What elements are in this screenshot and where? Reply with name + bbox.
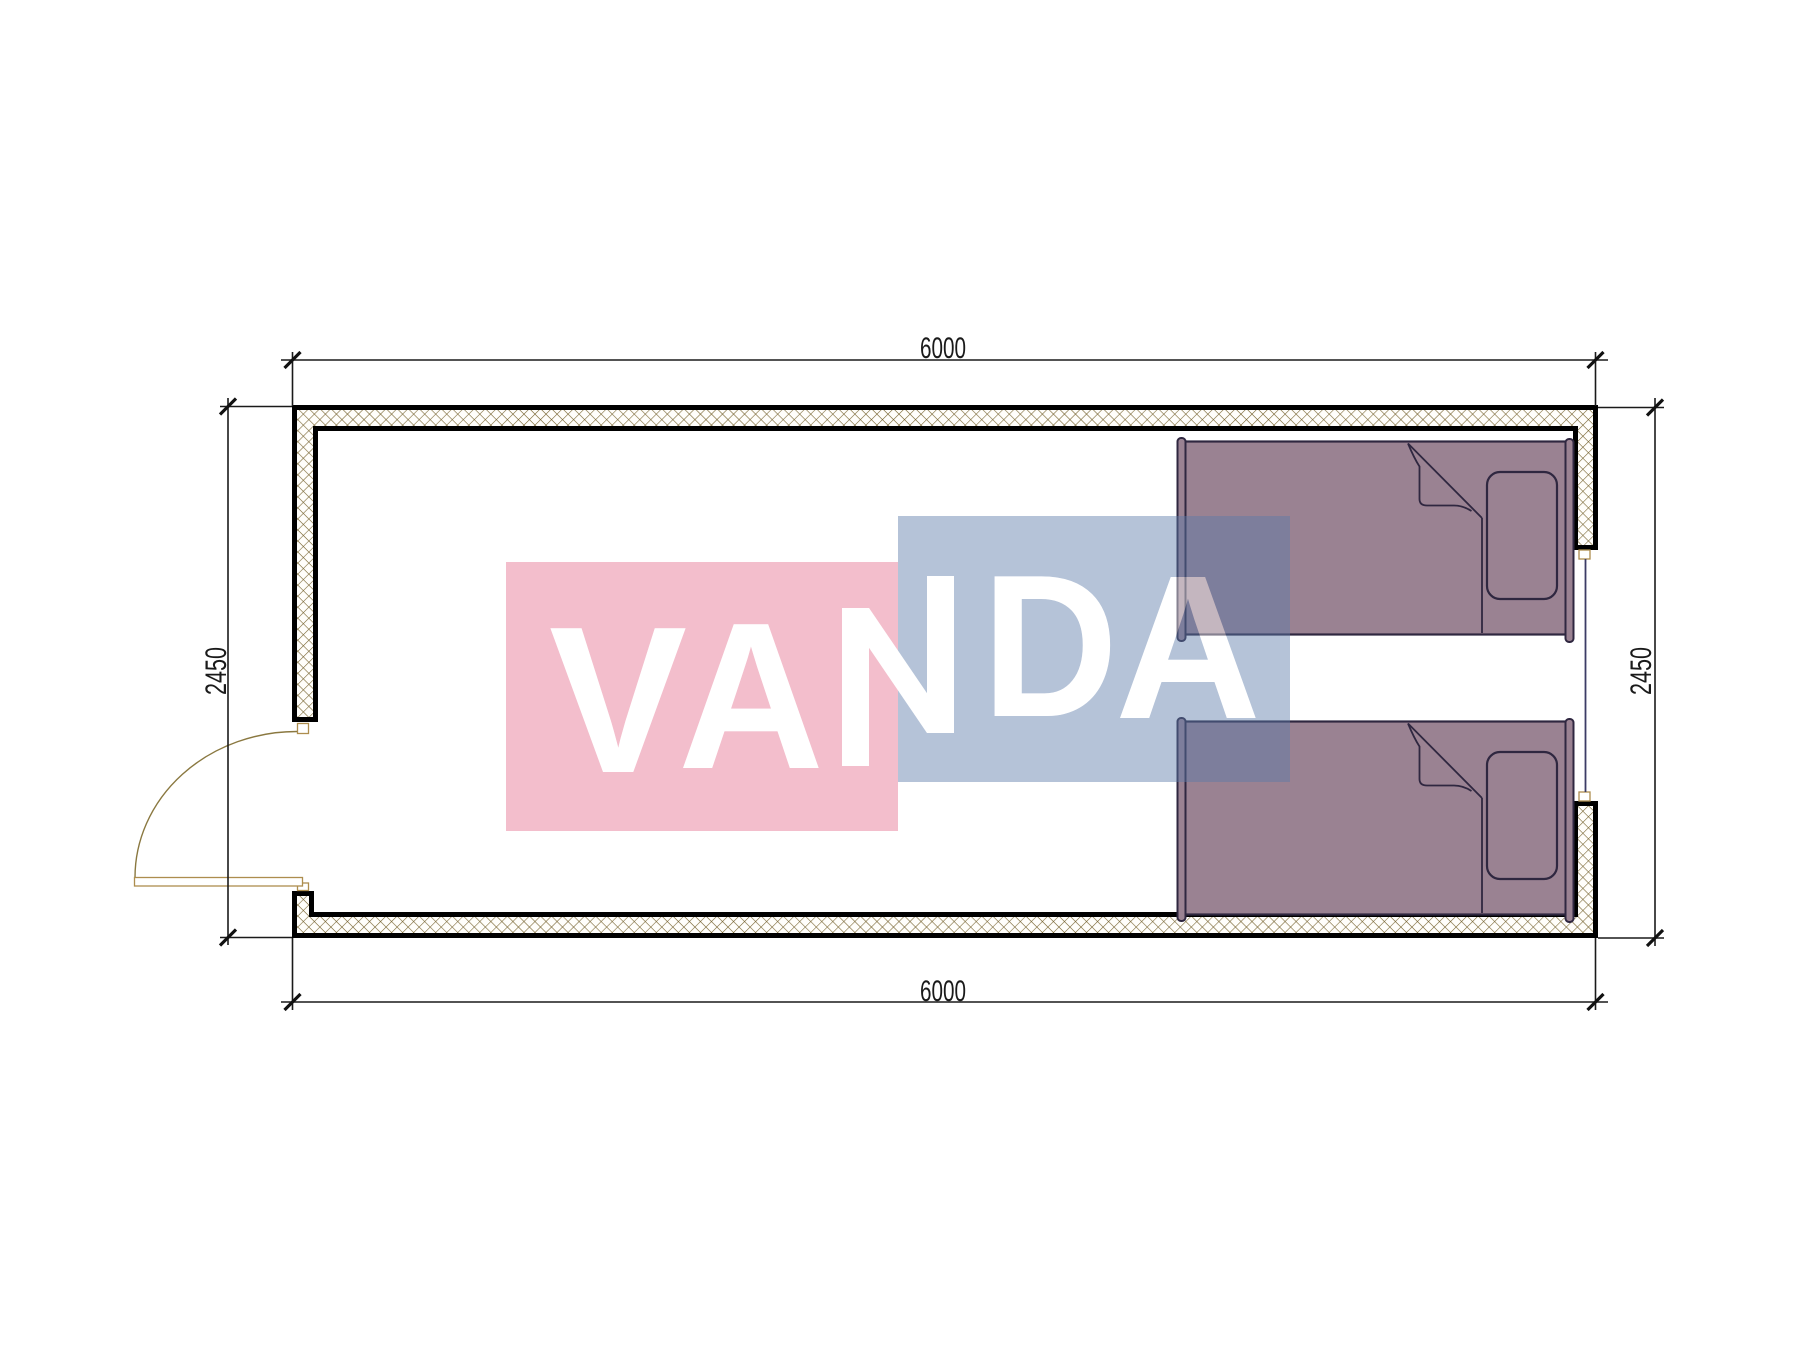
svg-text:6000: 6000 [920,975,966,1008]
svg-text:6000: 6000 [920,332,966,365]
svg-text:2450: 2450 [1625,647,1658,695]
svg-text:2450: 2450 [200,647,233,695]
